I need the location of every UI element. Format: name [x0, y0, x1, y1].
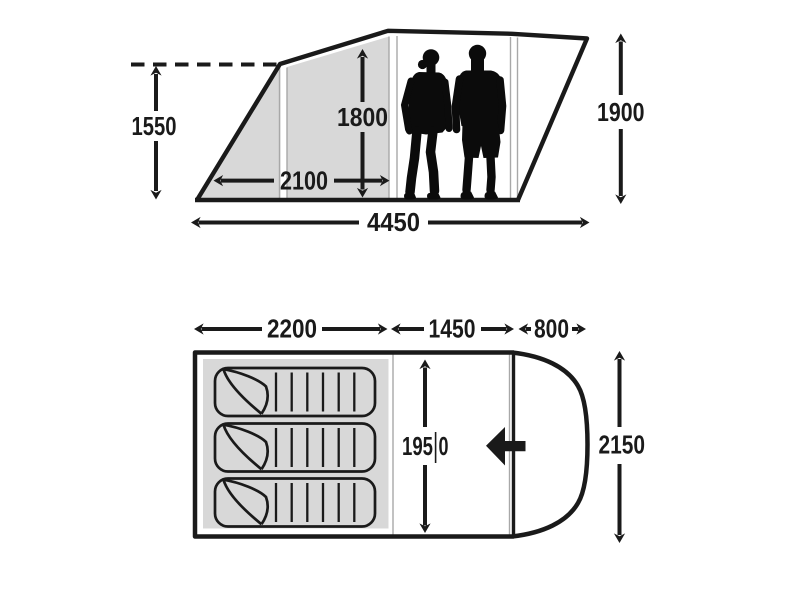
svg-text:1550: 1550 — [132, 111, 177, 141]
svg-text:2200: 2200 — [267, 314, 317, 344]
svg-text:195: 195 — [402, 431, 433, 461]
svg-text:1450: 1450 — [429, 314, 476, 344]
svg-text:1800: 1800 — [337, 102, 388, 132]
svg-text:800: 800 — [534, 314, 569, 344]
svg-text:4450: 4450 — [367, 207, 420, 237]
svg-text:1900: 1900 — [597, 97, 645, 127]
svg-text:2100: 2100 — [280, 165, 328, 195]
svg-text:2150: 2150 — [599, 430, 646, 460]
svg-text:0: 0 — [439, 431, 449, 461]
